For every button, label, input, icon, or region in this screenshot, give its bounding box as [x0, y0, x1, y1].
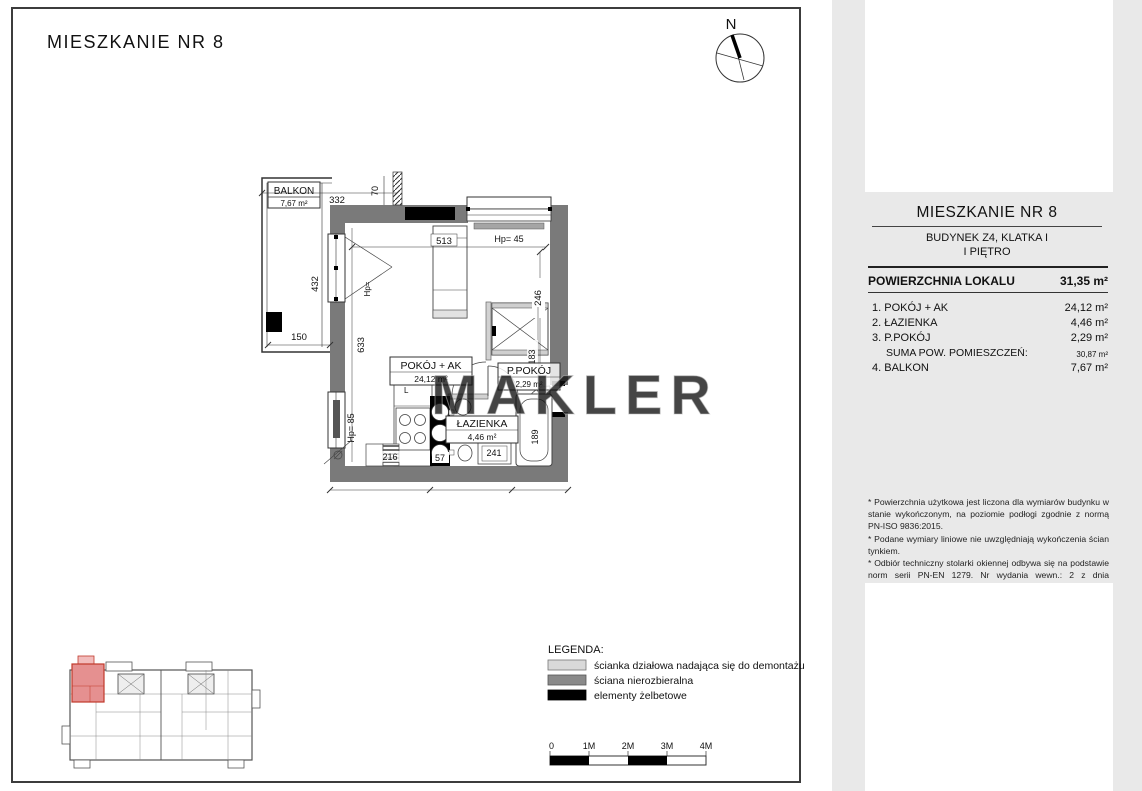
drawing-title: MIESZKANIE NR 8: [47, 32, 225, 52]
divider: [868, 266, 1108, 268]
total-area-row: POWIERZCHNIA LOKALU 31,35 m²: [868, 274, 1108, 290]
footnote: * Podane wymiary liniowe nie uwzględniaj…: [868, 533, 1109, 557]
window-param-balcony-door: Hp=: [363, 281, 372, 296]
total-area-value: 31,35 m²: [1060, 274, 1108, 288]
reinforced-element: [266, 312, 282, 332]
svg-text:0: 0: [549, 741, 554, 751]
room-row: 3. P.POKÓJ 2,29 m²: [870, 332, 1108, 347]
svg-text:633: 633: [356, 337, 367, 353]
legend-item-label: ścianka działowa nadająca się do demonta…: [594, 660, 805, 672]
north-label: N: [726, 16, 737, 33]
key-plan: [62, 656, 260, 768]
balcony-label: BALKON 7,67 m²: [268, 182, 320, 208]
window-param-left: Hp= 85: [346, 413, 356, 442]
svg-text:4,46 m²: 4,46 m²: [468, 432, 497, 442]
svg-text:1M: 1M: [583, 741, 596, 751]
fridge-label: L: [404, 386, 409, 395]
svg-text:7,67 m²: 7,67 m²: [280, 199, 307, 208]
svg-text:150: 150: [291, 332, 307, 343]
room-row: 1. POKÓJ + AK 24,12 m²: [870, 302, 1108, 317]
room-row: 4. BALKON 7,67 m²: [870, 362, 1108, 377]
svg-text:57: 57: [435, 453, 445, 463]
panel-title: MIESZKANIE NR 8: [868, 204, 1106, 222]
divider: [868, 292, 1108, 293]
svg-text:332: 332: [329, 195, 345, 206]
total-area-label: POWIERZCHNIA LOKALU: [868, 274, 1015, 288]
room-row: 2. ŁAZIENKA 4,46 m²: [870, 317, 1108, 332]
legend-swatch-wall: [548, 675, 586, 685]
legend-title: LEGENDA:: [548, 644, 604, 656]
footnote: * Powierzchnia użytkowa jest liczona dla…: [868, 496, 1109, 533]
svg-text:189: 189: [530, 429, 540, 444]
info-panel: MIESZKANIE NR 8 BUDYNEK Z4, KLATKA I I P…: [832, 0, 1142, 791]
svg-text:70: 70: [370, 186, 380, 196]
legend-swatch-partition: [548, 660, 586, 670]
panel-building: BUDYNEK Z4, KLATKA I: [868, 232, 1106, 244]
watermark: MAKLER: [431, 363, 719, 426]
svg-text:241: 241: [486, 448, 501, 458]
divider: [872, 226, 1102, 227]
panel-photo-placeholder-bottom: [865, 583, 1113, 791]
legend-swatch-reinforced: [548, 690, 586, 700]
legend-item-label: ściana nierozbieralna: [594, 675, 693, 687]
floor-plan-sheet: MIESZKANIE NR 8 N BALKON 7,67 m²: [0, 0, 812, 791]
svg-text:2M: 2M: [622, 741, 635, 751]
page: MIESZKANIE NR 8 N BALKON 7,67 m²: [0, 0, 1142, 791]
svg-text:513: 513: [436, 236, 452, 247]
svg-text:432: 432: [310, 276, 321, 292]
panel-photo-placeholder-top: [865, 0, 1113, 192]
svg-text:4M: 4M: [700, 741, 713, 751]
svg-text:3M: 3M: [661, 741, 674, 751]
svg-text:216: 216: [382, 452, 397, 462]
panel-floor: I PIĘTRO: [868, 246, 1106, 258]
window-param-top: Hp= 45: [494, 234, 523, 244]
svg-text:BALKON: BALKON: [274, 186, 315, 197]
legend-item-label: elementy żelbetowe: [594, 690, 687, 702]
sum-row: SUMA POW. POMIESZCZEŃ: 30,87 m²: [870, 347, 1108, 362]
svg-text:246: 246: [533, 290, 544, 306]
